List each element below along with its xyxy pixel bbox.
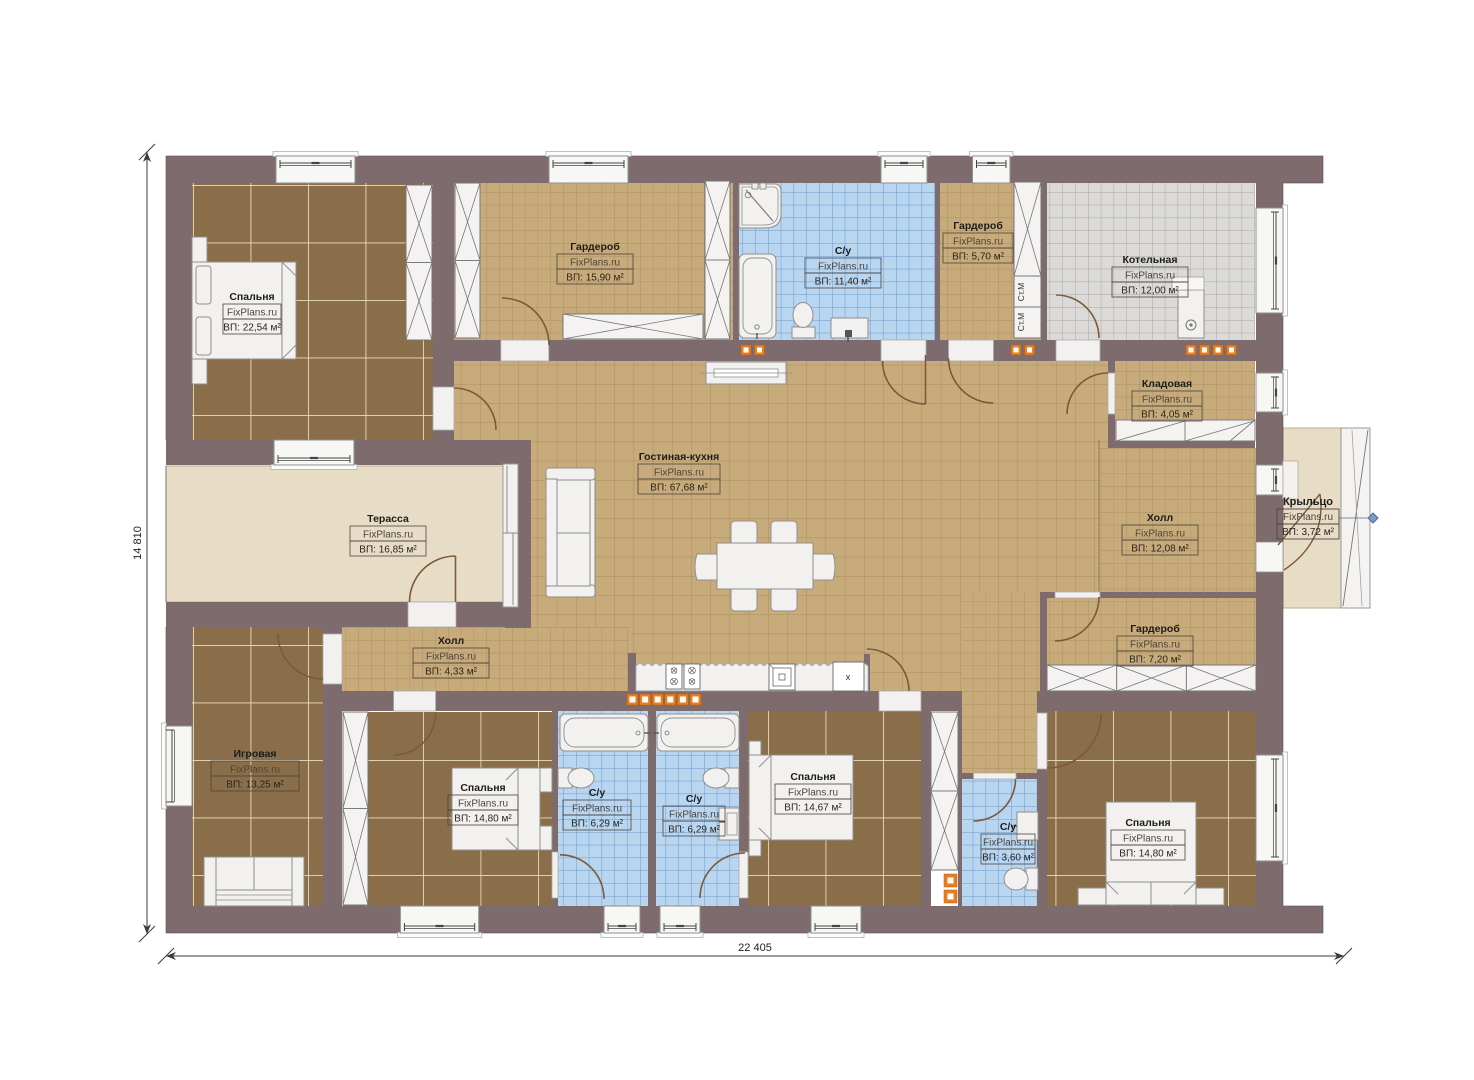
svg-text:ВП: 4,33 м²: ВП: 4,33 м²	[425, 667, 478, 678]
svg-text:C/у: C/у	[835, 245, 852, 257]
svg-text:ВП: 12,00 м²: ВП: 12,00 м²	[1121, 286, 1179, 297]
svg-text:FixPlans.ru: FixPlans.ru	[669, 810, 719, 821]
svg-text:FixPlans.ru: FixPlans.ru	[788, 788, 838, 799]
svg-text:ВП: 4,05 м²: ВП: 4,05 м²	[1141, 410, 1194, 421]
svg-text:Холл: Холл	[1147, 512, 1173, 524]
svg-text:FixPlans.ru: FixPlans.ru	[1130, 640, 1180, 651]
svg-text:Ст.М: Ст.М	[1016, 313, 1026, 332]
svg-text:Спальня: Спальня	[790, 771, 835, 783]
svg-text:C/у: C/у	[686, 793, 703, 805]
svg-text:FixPlans.ru: FixPlans.ru	[426, 652, 476, 663]
svg-text:ВП: 3,72 м²: ВП: 3,72 м²	[1282, 527, 1335, 538]
svg-text:ВП: 14,80 м²: ВП: 14,80 м²	[454, 814, 512, 825]
svg-text:FixPlans.ru: FixPlans.ru	[230, 765, 280, 776]
svg-text:FixPlans.ru: FixPlans.ru	[1142, 395, 1192, 406]
svg-text:ВП: 15,90 м²: ВП: 15,90 м²	[566, 273, 624, 284]
svg-text:FixPlans.ru: FixPlans.ru	[572, 804, 622, 815]
svg-text:Кладовая: Кладовая	[1142, 378, 1192, 390]
svg-text:Гардероб: Гардероб	[953, 220, 1003, 232]
svg-text:ВП: 12,08 м²: ВП: 12,08 м²	[1131, 544, 1189, 555]
svg-text:ВП: 14,80 м²: ВП: 14,80 м²	[1119, 849, 1177, 860]
svg-text:C/у: C/у	[589, 787, 606, 799]
svg-text:FixPlans.ru: FixPlans.ru	[1135, 529, 1185, 540]
svg-text:ВП: 14,67 м²: ВП: 14,67 м²	[784, 803, 842, 814]
svg-text:ВП: 22,54 м²: ВП: 22,54 м²	[223, 323, 281, 334]
svg-text:Крыльцо: Крыльцо	[1283, 496, 1333, 508]
svg-text:22 405: 22 405	[738, 942, 772, 954]
svg-text:ВП: 7,20 м²: ВП: 7,20 м²	[1129, 655, 1182, 666]
svg-text:Гостиная-кухня: Гостиная-кухня	[639, 451, 719, 463]
svg-text:FixPlans.ru: FixPlans.ru	[654, 468, 704, 479]
svg-text:FixPlans.ru: FixPlans.ru	[953, 237, 1003, 248]
svg-text:FixPlans.ru: FixPlans.ru	[227, 308, 277, 319]
svg-text:FixPlans.ru: FixPlans.ru	[818, 262, 868, 273]
svg-text:FixPlans.ru: FixPlans.ru	[1125, 271, 1175, 282]
svg-text:Спальня: Спальня	[229, 291, 274, 303]
svg-text:14 810: 14 810	[132, 526, 144, 560]
svg-text:Ст.М: Ст.М	[1016, 283, 1026, 302]
svg-text:Спальня: Спальня	[460, 782, 505, 794]
svg-text:FixPlans.ru: FixPlans.ru	[983, 838, 1033, 849]
svg-text:ВП: 13,25 м²: ВП: 13,25 м²	[226, 780, 284, 791]
svg-text:Игровая: Игровая	[233, 748, 276, 760]
svg-text:C/у: C/у	[1000, 821, 1017, 833]
svg-text:FixPlans.ru: FixPlans.ru	[570, 258, 620, 269]
svg-text:Терасса: Терасса	[367, 513, 409, 525]
svg-text:FixPlans.ru: FixPlans.ru	[363, 530, 413, 541]
svg-text:FixPlans.ru: FixPlans.ru	[1123, 834, 1173, 845]
svg-text:ВП: 3,60 м²: ВП: 3,60 м²	[982, 853, 1035, 864]
svg-text:Спальня: Спальня	[1125, 817, 1170, 829]
svg-text:ВП: 11,40 м²: ВП: 11,40 м²	[815, 277, 872, 288]
svg-text:ВП: 5,70 м²: ВП: 5,70 м²	[952, 252, 1005, 263]
svg-text:Холл: Холл	[438, 635, 464, 647]
svg-text:ВП: 67,68 м²: ВП: 67,68 м²	[650, 483, 708, 494]
svg-text:FixPlans.ru: FixPlans.ru	[458, 799, 508, 810]
svg-text:Гардероб: Гардероб	[570, 241, 620, 253]
svg-text:Гардероб: Гардероб	[1130, 623, 1180, 635]
svg-text:x: x	[846, 672, 851, 682]
svg-text:ВП: 6,29 м²: ВП: 6,29 м²	[571, 819, 624, 830]
svg-text:ВП: 6,29 м²: ВП: 6,29 м²	[668, 825, 721, 836]
svg-text:ВП: 16,85 м²: ВП: 16,85 м²	[359, 545, 417, 556]
svg-text:FixPlans.ru: FixPlans.ru	[1283, 512, 1333, 523]
svg-text:Котельная: Котельная	[1123, 254, 1178, 266]
